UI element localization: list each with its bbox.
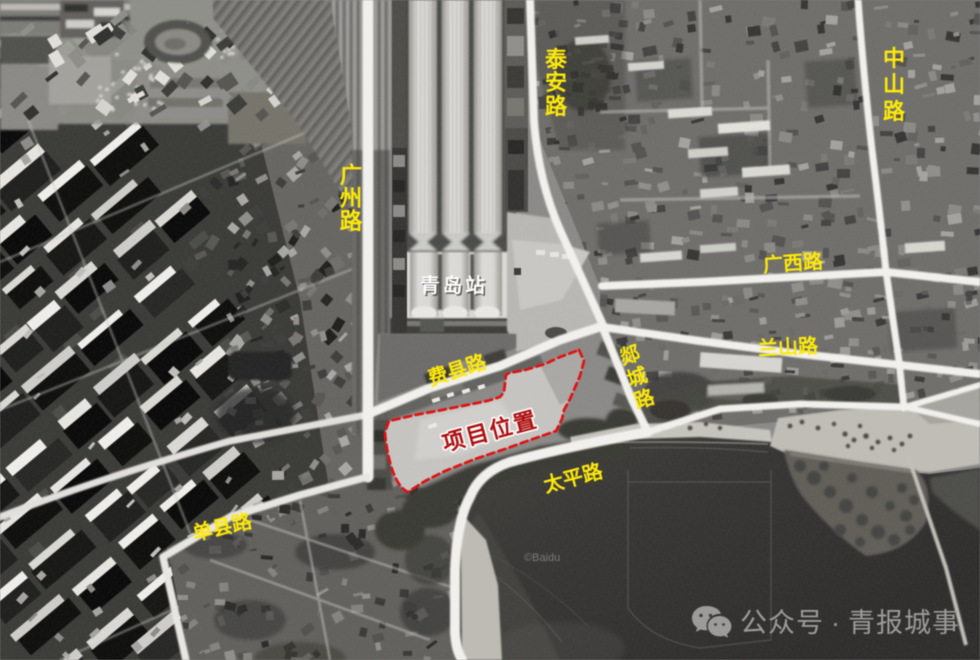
svg-text:州: 州	[340, 186, 363, 211]
svg-text:兰山路: 兰山路	[757, 333, 819, 360]
svg-text:安: 安	[545, 70, 567, 95]
svg-text:公众号·青报城事: 公众号·青报城事	[740, 608, 960, 638]
svg-text:广: 广	[340, 162, 363, 188]
svg-text:中: 中	[883, 46, 905, 71]
svg-text:路: 路	[545, 94, 568, 119]
svg-text:青岛站: 青岛站	[420, 274, 488, 297]
svg-text:路: 路	[883, 99, 906, 124]
svg-text:泰: 泰	[544, 47, 568, 72]
svg-text:山: 山	[883, 72, 905, 97]
svg-text:©Baidu: ©Baidu	[524, 552, 560, 564]
svg-text:路: 路	[340, 208, 363, 234]
